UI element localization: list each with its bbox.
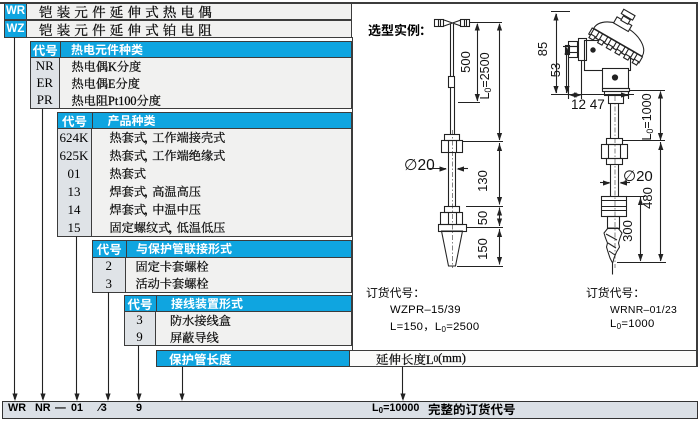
svg-text:12 47: 12 47 — [571, 97, 605, 112]
svg-text:150: 150 — [475, 238, 490, 260]
svg-text:∅20: ∅20 — [404, 157, 435, 174]
svg-text:L0=2500: L0=2500 — [478, 52, 493, 99]
svg-text:L0=1000: L0=1000 — [640, 93, 655, 140]
svg-text:85: 85 — [535, 42, 550, 56]
svg-text:480: 480 — [640, 187, 655, 209]
svg-text:130: 130 — [475, 170, 490, 192]
svg-text:300: 300 — [620, 220, 635, 242]
svg-text:50: 50 — [475, 211, 490, 225]
svg-text:53: 53 — [548, 63, 563, 77]
svg-text:500: 500 — [458, 51, 473, 73]
